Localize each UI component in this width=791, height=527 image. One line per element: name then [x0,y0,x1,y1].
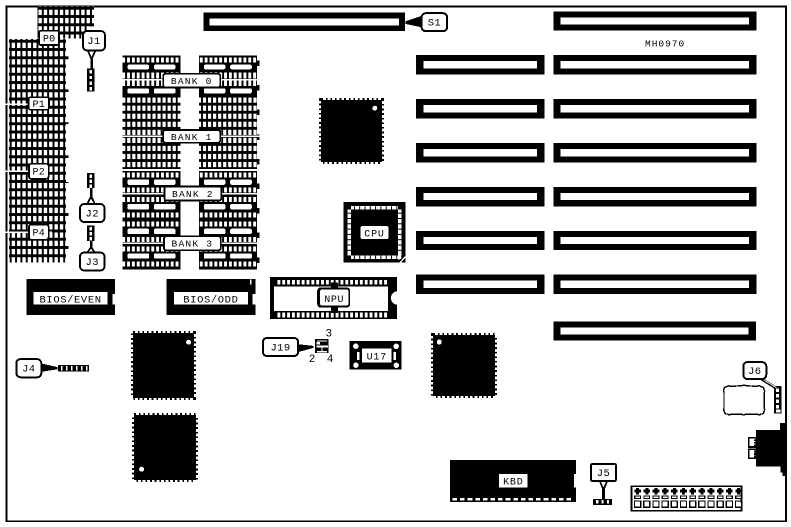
svg-text:3: 3 [325,329,332,341]
svg-text:BANK 2: BANK 2 [172,189,214,200]
svg-text:P4: P4 [33,229,45,240]
svg-text:KBD: KBD [503,478,523,489]
svg-text:S1: S1 [428,18,441,30]
svg-text:2: 2 [309,354,316,366]
svg-text:BANK 0: BANK 0 [171,76,213,87]
svg-text:J2: J2 [86,208,99,220]
svg-text:J1: J1 [87,36,100,48]
svg-text:J19: J19 [270,342,290,354]
svg-text:BIOS/EVEN: BIOS/EVEN [40,294,102,306]
svg-text:P1: P1 [33,100,45,111]
svg-text:J4: J4 [22,364,35,376]
svg-text:P0: P0 [43,34,55,45]
svg-text:NPU: NPU [324,295,344,306]
svg-text:MH0970: MH0970 [645,38,685,49]
svg-text:CPU: CPU [364,230,384,241]
svg-text:BANK 3: BANK 3 [172,239,214,250]
svg-text:BIOS/ODD: BIOS/ODD [183,294,238,306]
svg-text:J3: J3 [86,257,99,269]
svg-text:P2: P2 [33,168,45,179]
svg-text:BANK 1: BANK 1 [171,132,213,143]
svg-text:U17: U17 [367,352,387,363]
svg-text:J6: J6 [748,366,761,378]
svg-text:4: 4 [327,354,334,366]
svg-text:J5: J5 [597,468,610,480]
